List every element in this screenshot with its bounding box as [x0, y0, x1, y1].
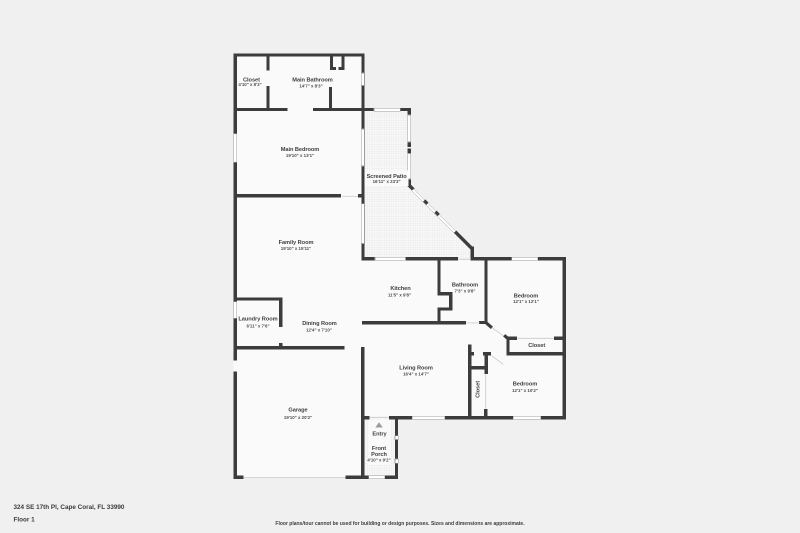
- svg-text:16'11" x 23'3": 16'11" x 23'3": [373, 179, 401, 184]
- svg-text:Bedroom: Bedroom: [513, 382, 537, 388]
- svg-text:19'10" x 20'2": 19'10" x 20'2": [284, 415, 312, 420]
- svg-text:Laundry Room: Laundry Room: [238, 317, 277, 323]
- svg-text:4'10" x 9'2": 4'10" x 9'2": [367, 458, 390, 463]
- svg-text:Floor 1: Floor 1: [14, 517, 36, 524]
- svg-text:Kitchen: Kitchen: [390, 286, 411, 292]
- svg-text:7'3" x 9'8": 7'3" x 9'8": [455, 289, 476, 294]
- svg-text:4'10" x 8'3": 4'10" x 8'3": [238, 82, 261, 87]
- svg-text:12'1" x 10'2": 12'1" x 10'2": [512, 388, 538, 393]
- svg-text:12'1" x 12'1": 12'1" x 12'1": [513, 299, 539, 304]
- svg-text:14'7" x 8'3": 14'7" x 8'3": [299, 83, 322, 88]
- svg-text:16'4" x 14'7": 16'4" x 14'7": [403, 371, 429, 376]
- svg-text:Garage: Garage: [288, 408, 307, 414]
- svg-text:11'5" x 9'8": 11'5" x 9'8": [388, 293, 411, 298]
- svg-text:Entry: Entry: [372, 432, 387, 438]
- svg-text:Closet: Closet: [475, 381, 481, 398]
- svg-text:Closet: Closet: [528, 343, 545, 349]
- svg-text:Front: Front: [372, 446, 386, 452]
- svg-text:6'11" x 7'6": 6'11" x 7'6": [246, 324, 269, 329]
- svg-text:19'10" x 15'11": 19'10" x 15'11": [281, 246, 311, 251]
- svg-text:19'10" x 13'1": 19'10" x 13'1": [286, 153, 314, 158]
- svg-text:12'4" x 7'10": 12'4" x 7'10": [306, 328, 332, 333]
- svg-text:324 SE 17th Pl, Cape Coral, FL: 324 SE 17th Pl, Cape Coral, FL 33990: [14, 504, 125, 511]
- svg-text:Dining Room: Dining Room: [302, 321, 337, 327]
- svg-text:Floor plans/tour cannot be use: Floor plans/tour cannot be used for buil…: [275, 521, 525, 527]
